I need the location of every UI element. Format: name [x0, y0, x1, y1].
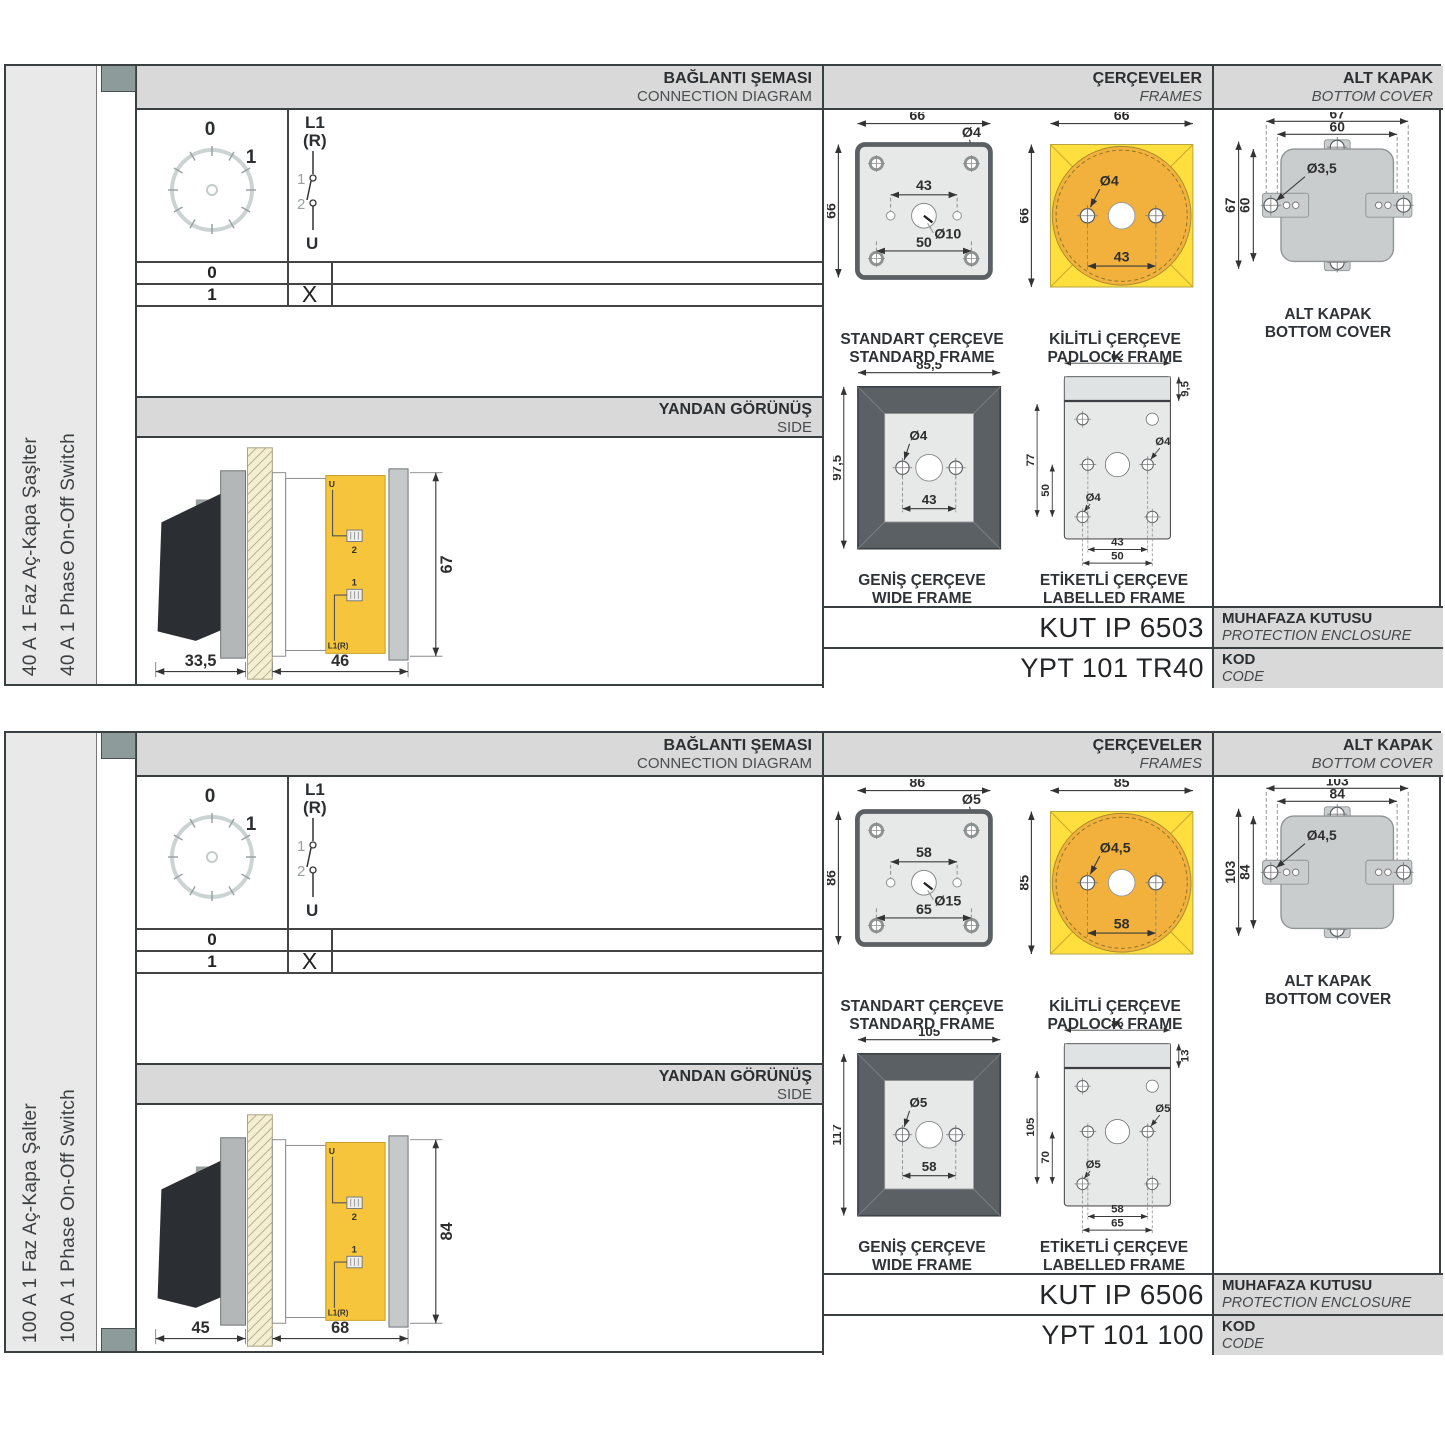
side-view-header: YANDAN GÖRÜNÜŞ SIDE: [137, 396, 822, 438]
dim-span-2: 65: [1111, 1217, 1124, 1229]
dial-position-1: 1: [246, 814, 257, 835]
dim-span-1: 43: [1111, 537, 1124, 549]
table-position-1: 1: [137, 284, 287, 306]
body-terminal-l1r: L1(R): [328, 1309, 349, 1318]
dial-position-0: 0: [205, 786, 216, 807]
standard-frame-drawing: 66 Ø4 66 43 Ø10 50: [827, 112, 1017, 329]
front-plate: [221, 471, 246, 658]
dim-outer-height: 103: [1222, 860, 1238, 883]
header-title-tr: ÇERÇEVELER: [822, 736, 1202, 755]
dim-width: 85,5: [916, 362, 943, 372]
dim-height: 105: [1025, 1118, 1037, 1137]
code-label: KOD CODE: [1214, 647, 1443, 688]
header-title-en: BOTTOM COVER: [1212, 88, 1433, 106]
body-terminal-1: 1: [352, 1244, 358, 1255]
dim-body-depth: 46: [272, 652, 408, 677]
dim-height: 117: [833, 1124, 844, 1146]
frames-header: ÇERÇEVELER FRAMES: [822, 66, 1212, 110]
column-divider: [1212, 66, 1214, 688]
dim-width: 66: [1114, 112, 1130, 124]
enclosure-code: KUT IP 6506: [824, 1273, 1212, 1314]
header-title-en: CONNECTION DIAGRAM: [137, 88, 812, 106]
product-section: 40 A 1 Faz Aç-Kapa Şaşlter 40 A 1 Phase …: [4, 64, 1441, 686]
labelled-frame-block: 62 9,5 77 50 Ø4 Ø4 43 50 ETİKETLİ ÇER: [1016, 354, 1212, 608]
product-code: YPT 101 TR40: [824, 647, 1212, 688]
section-index-mark: [101, 66, 136, 92]
product-name-en: 100 A 1 Phase On-Off Switch: [58, 1089, 80, 1343]
cover-label-en: BOTTOM COVER: [1265, 324, 1391, 342]
dim-outer-height: 67: [1222, 197, 1238, 213]
bottom-cover-drawing: 67 60 67 60 Ø3,5: [1222, 112, 1434, 304]
body-terminal-l1r: L1(R): [328, 642, 349, 651]
dim-center-hole: Ø10: [934, 227, 961, 243]
bottom-cover-header: ALT KAPAK BOTTOM COVER: [1212, 733, 1443, 777]
wide-frame-block: 85,5 97,5 Ø4 43 GENİŞ ÇERÇEVE WIDE FRAME: [828, 362, 1016, 608]
frame-label-tr: GENİŞ ÇERÇEVE: [858, 1239, 985, 1257]
table-position-0: 0: [137, 929, 287, 951]
table-divider: [331, 261, 333, 306]
dim-center-hole: Ø15: [934, 894, 961, 910]
product-section: 100 A 1 Faz Aç-Kapa Şalter 100 A 1 Phase…: [4, 731, 1441, 1353]
product-label-column: 40 A 1 Faz Aç-Kapa Şaşlter 40 A 1 Phase …: [6, 66, 97, 684]
labelled-frame-drawing: 86 13 105 70 Ø5 Ø5 58 65: [1025, 1021, 1203, 1237]
code-label-en: CODE: [1222, 669, 1443, 686]
cover-label-tr: ALT KAPAK: [1284, 973, 1371, 991]
body-terminal-u: U: [329, 479, 335, 489]
switch-body: U 2 1 L1(R): [326, 476, 385, 654]
dim-height: 97,5: [833, 454, 844, 481]
dim-hole: Ø3,5: [1307, 160, 1337, 176]
product-name-en: 40 A 1 Phase On-Off Switch: [58, 433, 80, 676]
dim-handle-value: 33,5: [185, 652, 217, 670]
dim-inner-height: 60: [1237, 197, 1253, 213]
dim-span: 58: [1114, 916, 1130, 932]
dim-hole: Ø4,5: [1307, 827, 1337, 843]
frame-label-tr: STANDART ÇERÇEVE: [840, 998, 1003, 1016]
terminal-u: U: [306, 901, 318, 920]
table-mark-1: X: [289, 284, 331, 306]
switch-handle: [158, 1161, 221, 1308]
contact-2-label: 2: [297, 196, 305, 213]
switch-handle: [158, 494, 221, 641]
side-view-drawing: U 2 1 L1(R) 84 45 68: [146, 1111, 586, 1350]
back-plate: [389, 469, 408, 660]
bottom-cover-block: 103 84 103 84 Ø4,5 ALT KAPAK BOTTOM COVE…: [1218, 779, 1438, 1009]
wide-frame-drawing: 85,5 97,5 Ø4 43: [833, 362, 1011, 570]
labelled-frame-drawing: 62 9,5 77 50 Ø4 Ø4 43 50: [1025, 354, 1203, 570]
wide-frame-block: 105 117 Ø5 58 GENİŞ ÇERÇEVE WIDE FRAME: [828, 1029, 1016, 1275]
dim-handle-value: 45: [192, 1319, 210, 1337]
side-view-title-en: SIDE: [137, 419, 812, 437]
dial-position-1: 1: [246, 147, 257, 168]
dim-strip: 9,5: [1180, 381, 1192, 397]
product-label-column: 100 A 1 Faz Aç-Kapa Şalter 100 A 1 Phase…: [6, 733, 97, 1351]
column-divider: [822, 733, 824, 1355]
frame-label-tr: KİLİTLİ ÇERÇEVE: [1049, 998, 1181, 1016]
table-position-0: 0: [137, 262, 287, 284]
padlock-frame-drawing: 66 66 Ø4 43: [1020, 112, 1210, 329]
dim-span-top: 43: [916, 178, 932, 194]
enclosure-label-en: PROTECTION ENCLOSURE: [1222, 1295, 1443, 1312]
bottom-cover-drawing: 103 84 103 84 Ø4,5: [1222, 779, 1434, 971]
dim-inner-height: 70: [1040, 1151, 1052, 1164]
product-name-tr: 100 A 1 Faz Aç-Kapa Şalter: [20, 1103, 42, 1343]
table-position-1: 1: [137, 951, 287, 973]
cover-label-en: BOTTOM COVER: [1265, 991, 1391, 1009]
column-divider: [1212, 733, 1214, 1355]
side-view-title-en: SIDE: [137, 1086, 812, 1104]
table-divider: [331, 928, 333, 973]
standard-frame-drawing: 86 Ø5 86 58 Ø15 65: [827, 779, 1017, 996]
dim-height: 66: [827, 203, 840, 219]
side-view-title-tr: YANDAN GÖRÜNÜŞ: [137, 1067, 812, 1086]
frame-label-en: LABELLED FRAME: [1043, 1257, 1185, 1275]
front-plate: [221, 1138, 246, 1325]
padlock-frame-drawing: 85 85 Ø4,5 58: [1020, 779, 1210, 996]
enclosure-code: KUT IP 6503: [824, 606, 1212, 647]
terminal-r: (R): [303, 131, 327, 150]
mounting-panel: [247, 448, 272, 679]
terminal-l1: L1: [305, 780, 325, 799]
enclosure-label: MUHAFAZA KUTUSU PROTECTION ENCLOSURE: [1214, 1273, 1443, 1314]
body-terminal-u: U: [329, 1146, 335, 1156]
frame-label-en: WIDE FRAME: [872, 1257, 972, 1275]
spacer: [272, 1140, 285, 1324]
dim-span-bottom: 65: [916, 902, 932, 918]
wide-frame-drawing: 105 117 Ø5 58: [833, 1029, 1011, 1237]
dim-width: 66: [909, 112, 925, 124]
enclosure-label-tr: MUHAFAZA KUTUSU: [1222, 610, 1443, 628]
product-name-tr: 40 A 1 Faz Aç-Kapa Şaşlter: [20, 437, 42, 676]
frame-label-en: WIDE FRAME: [872, 590, 972, 608]
switch-dial-drawing: 0 1: [137, 777, 287, 927]
margin-strip: [97, 733, 137, 1351]
frame-label-tr: KİLİTLİ ÇERÇEVE: [1049, 331, 1181, 349]
column-divider: [822, 66, 824, 688]
dim-height: 86: [827, 870, 840, 886]
dim-body-depth: 68: [272, 1319, 408, 1344]
bottom-cover-header: ALT KAPAK BOTTOM COVER: [1212, 66, 1443, 110]
circuit-schematic: L1 (R) 1 2 U: [289, 777, 379, 928]
dim-span: 43: [1114, 249, 1130, 265]
dim-corner-hole: Ø4: [962, 125, 981, 141]
padlock-frame-block: 66 66 Ø4 43 KİLİTLİ ÇERÇEVE PADLOCK FRAM…: [1018, 112, 1212, 367]
bottom-cover-block: 67 60 67 60 Ø3,5 ALT KAPAK BOTTOM COVER: [1218, 112, 1438, 342]
cover-label-tr: ALT KAPAK: [1284, 306, 1371, 324]
frame-label-tr: GENİŞ ÇERÇEVE: [858, 572, 985, 590]
dim-height: 67: [410, 473, 456, 657]
code-label-tr: KOD: [1222, 1318, 1443, 1336]
dim-hole-1: Ø4: [1155, 436, 1171, 448]
dim-width: 86: [909, 779, 925, 791]
body-terminal-1: 1: [352, 577, 358, 588]
standard-frame-block: 66 Ø4 66 43 Ø10 50 STANDART ÇERÇEVE STAN…: [826, 112, 1018, 367]
dim-span-2: 50: [1111, 550, 1124, 562]
dim-inner-height: 84: [1237, 864, 1253, 880]
connection-diagram-header: BAĞLANTI ŞEMASI CONNECTION DIAGRAM: [137, 66, 822, 110]
header-title-tr: BAĞLANTI ŞEMASI: [137, 736, 812, 755]
dim-depth-value: 46: [331, 652, 349, 670]
frame-label-tr: ETİKETLİ ÇERÇEVE: [1040, 572, 1188, 590]
dim-width: 85: [1114, 779, 1130, 791]
switch-dial-drawing: 0 1: [137, 110, 287, 260]
header-title-tr: ÇERÇEVELER: [822, 69, 1202, 88]
frame-label-tr: ETİKETLİ ÇERÇEVE: [1040, 1239, 1188, 1257]
side-view-drawing: U 2 1 L1(R) 67 33,5 46: [146, 444, 586, 683]
code-label-tr: KOD: [1222, 651, 1443, 669]
dim-height: 85: [1020, 875, 1033, 891]
dim-width: 62: [1111, 354, 1124, 363]
margin-strip: [97, 66, 137, 684]
dim-corner-hole: Ø5: [962, 792, 981, 808]
header-title-en: BOTTOM COVER: [1212, 755, 1433, 773]
dim-strip: 13: [1180, 1050, 1192, 1063]
dim-span-top: 58: [916, 845, 932, 861]
dim-inner-width: 60: [1330, 118, 1346, 134]
dial-ticks: [168, 813, 256, 901]
dim-height-value: 67: [438, 555, 456, 573]
padlock-frame-block: 85 85 Ø4,5 58 KİLİTLİ ÇERÇEVE PADLOCK FR…: [1018, 779, 1212, 1034]
dim-hole: Ø5: [910, 1095, 928, 1110]
header-title-tr: ALT KAPAK: [1212, 69, 1433, 88]
enclosure-label: MUHAFAZA KUTUSU PROTECTION ENCLOSURE: [1214, 606, 1443, 647]
enclosure-label-en: PROTECTION ENCLOSURE: [1222, 628, 1443, 645]
terminal-l1: L1: [305, 113, 325, 132]
dim-height-value: 84: [438, 1222, 456, 1240]
switch-body: U 2 1 L1(R): [326, 1143, 385, 1321]
header-title-tr: ALT KAPAK: [1212, 736, 1433, 755]
connection-diagram-header: BAĞLANTI ŞEMASI CONNECTION DIAGRAM: [137, 733, 822, 777]
dim-height: 77: [1025, 454, 1037, 467]
dim-span-bottom: 50: [916, 235, 932, 251]
housing: [286, 478, 326, 650]
contact-1-label: 1: [297, 838, 305, 855]
frames-header: ÇERÇEVELER FRAMES: [822, 733, 1212, 777]
spacer: [272, 473, 285, 657]
header-title-en: FRAMES: [822, 88, 1202, 106]
header-title-en: CONNECTION DIAGRAM: [137, 755, 812, 773]
table-mark-1: X: [289, 951, 331, 973]
header-title-tr: BAĞLANTI ŞEMASI: [137, 69, 812, 88]
section-index-mark: [101, 733, 136, 759]
dim-inner-height: 50: [1040, 484, 1052, 497]
frame-label-en: LABELLED FRAME: [1043, 590, 1185, 608]
contact-1-label: 1: [297, 171, 305, 188]
dim-height: 66: [1020, 208, 1033, 224]
dim-hole: Ø4: [1100, 173, 1119, 189]
dim-hole: Ø4: [910, 428, 928, 443]
product-code: YPT 101 100: [824, 1314, 1212, 1355]
body-terminal-2: 2: [352, 1212, 357, 1223]
mounting-panel: [247, 1115, 272, 1346]
enclosure-label-tr: MUHAFAZA KUTUSU: [1222, 1277, 1443, 1295]
dim-span: 58: [922, 1159, 937, 1174]
side-view-header: YANDAN GÖRÜNÜŞ SIDE: [137, 1063, 822, 1105]
side-view-title-tr: YANDAN GÖRÜNÜŞ: [137, 400, 812, 419]
back-plate: [389, 1136, 408, 1327]
housing: [286, 1145, 326, 1317]
dim-height: 84: [410, 1140, 456, 1324]
dim-hole: Ø4,5: [1100, 840, 1131, 856]
dial-ticks: [168, 146, 256, 234]
dim-hole-1: Ø5: [1155, 1103, 1170, 1115]
dim-depth-value: 68: [331, 1319, 349, 1337]
dim-inner-width: 84: [1330, 785, 1346, 801]
terminal-r: (R): [303, 798, 327, 817]
code-label-en: CODE: [1222, 1336, 1443, 1353]
dial-position-0: 0: [205, 119, 216, 140]
dim-span-1: 58: [1111, 1204, 1124, 1216]
circuit-schematic: L1 (R) 1 2 U: [289, 110, 379, 261]
section-index-mark-bottom: [101, 1328, 136, 1351]
standard-frame-block: 86 Ø5 86 58 Ø15 65 STANDART ÇERÇEVE STAN…: [826, 779, 1018, 1034]
terminal-u: U: [306, 234, 318, 253]
code-label: KOD CODE: [1214, 1314, 1443, 1355]
frame-label-tr: STANDART ÇERÇEVE: [840, 331, 1003, 349]
labelled-frame-block: 86 13 105 70 Ø5 Ø5 58 65 ETİKETLİ ÇER: [1016, 1021, 1212, 1275]
body-terminal-2: 2: [352, 545, 357, 556]
dim-width: 86: [1111, 1021, 1124, 1030]
contact-2-label: 2: [297, 863, 305, 880]
header-title-en: FRAMES: [822, 755, 1202, 773]
dim-width: 105: [918, 1029, 941, 1039]
dim-span: 43: [922, 492, 937, 507]
